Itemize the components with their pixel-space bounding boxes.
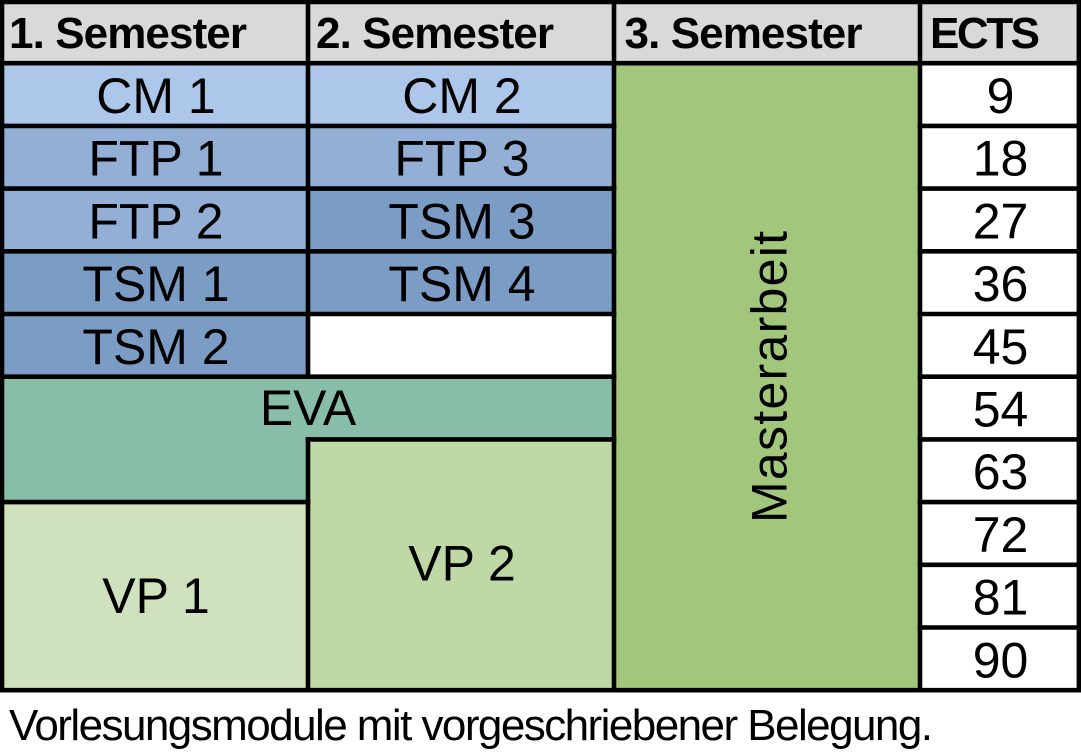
svg-text:CM 1: CM 1 — [96, 68, 215, 124]
svg-text:FTP 3: FTP 3 — [394, 131, 529, 187]
svg-text:Masterarbeit: Masterarbeit — [742, 231, 798, 523]
svg-text:3. Semester: 3. Semester — [625, 9, 863, 58]
svg-text:18: 18 — [973, 131, 1029, 187]
svg-text:9: 9 — [987, 68, 1015, 124]
svg-text:CM 2: CM 2 — [402, 68, 521, 124]
svg-text:VP 1: VP 1 — [102, 568, 210, 624]
svg-text:TSM 2: TSM 2 — [82, 319, 229, 375]
svg-text:45: 45 — [973, 319, 1029, 375]
svg-text:72: 72 — [973, 507, 1029, 563]
svg-text:TSM 1: TSM 1 — [82, 256, 229, 312]
svg-text:TSM 4: TSM 4 — [388, 256, 535, 312]
svg-text:EVA: EVA — [260, 380, 357, 436]
svg-text:VP 2: VP 2 — [408, 536, 516, 592]
svg-text:Vorlesungsmodule mit vorgeschr: Vorlesungsmodule mit vorgeschriebener Be… — [9, 701, 933, 750]
svg-text:TSM 3: TSM 3 — [388, 193, 535, 249]
svg-text:27: 27 — [973, 193, 1029, 249]
svg-text:36: 36 — [973, 256, 1029, 312]
svg-text:2. Semester: 2. Semester — [316, 9, 554, 58]
svg-text:54: 54 — [973, 382, 1029, 438]
svg-text:FTP 1: FTP 1 — [88, 131, 223, 187]
svg-text:81: 81 — [973, 570, 1029, 626]
svg-text:ECTS: ECTS — [930, 9, 1040, 58]
svg-text:63: 63 — [973, 444, 1029, 500]
svg-text:90: 90 — [973, 632, 1029, 688]
svg-text:1. Semester: 1. Semester — [9, 9, 247, 58]
svg-text:FTP 2: FTP 2 — [88, 193, 223, 249]
